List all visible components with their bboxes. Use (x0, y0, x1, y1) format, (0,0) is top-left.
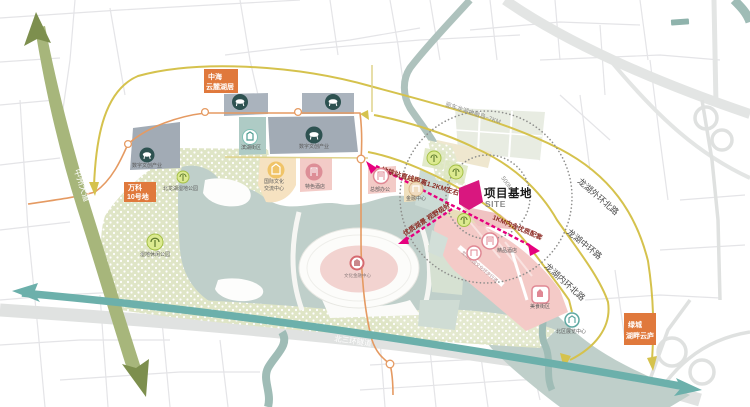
svg-text:国际文化: 国际文化 (264, 178, 284, 185)
svg-text:金融中心: 金融中心 (406, 195, 426, 202)
svg-text:北龙湖湿地公园: 北龙湖湿地公园 (163, 185, 198, 192)
svg-text:北区展览中心: 北区展览中心 (556, 328, 586, 335)
svg-text:10号地: 10号地 (127, 192, 149, 201)
svg-text:湖畔云庐: 湖畔云庐 (626, 331, 654, 340)
svg-text:数字文创产业: 数字文创产业 (132, 162, 162, 169)
svg-text:万科: 万科 (127, 183, 142, 192)
svg-text:文化金融中心: 文化金融中心 (344, 272, 371, 279)
svg-text:湿地休闲公园: 湿地休闲公园 (140, 251, 170, 258)
svg-text:云麓湖居: 云麓湖居 (206, 82, 234, 91)
svg-text:美食街区: 美食街区 (530, 303, 550, 310)
svg-text:交流中心: 交流中心 (264, 185, 284, 192)
svg-text:特色酒店: 特色酒店 (305, 183, 325, 190)
svg-text:绿城: 绿城 (628, 320, 642, 329)
svg-text:SITE: SITE (485, 199, 506, 209)
svg-text:总部办公: 总部办公 (370, 186, 390, 193)
svg-text:数字文创产业: 数字文创产业 (299, 143, 329, 150)
svg-text:滨湖街区: 滨湖街区 (241, 144, 261, 151)
svg-text:精品酒店: 精品酒店 (497, 247, 517, 254)
svg-text:中海: 中海 (208, 72, 222, 81)
